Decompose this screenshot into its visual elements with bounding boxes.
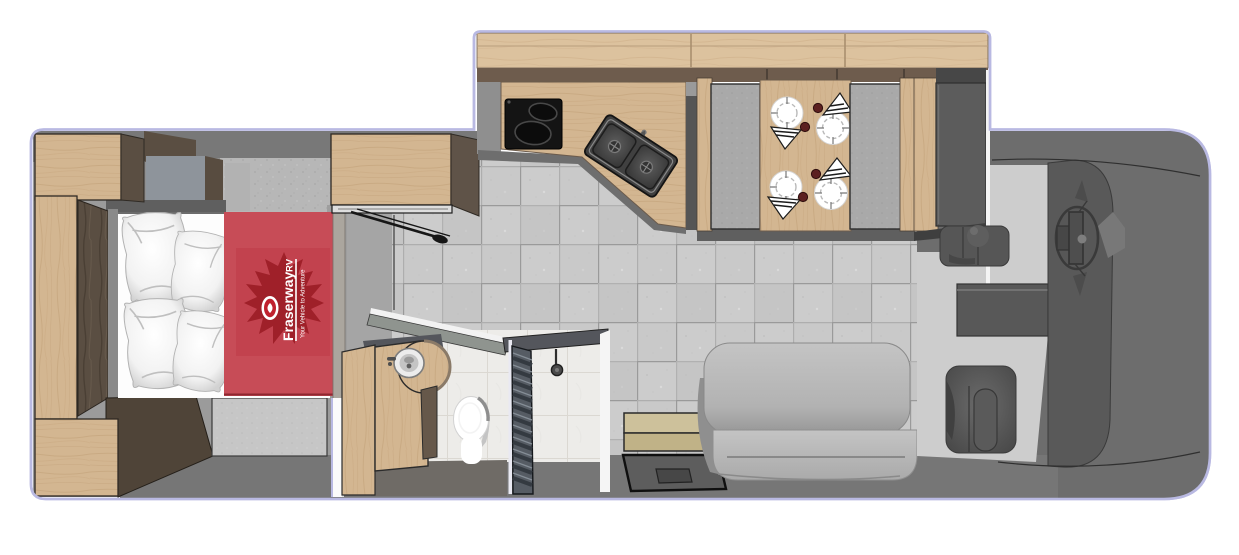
svg-text:Fraserway: Fraserway [280, 272, 296, 341]
svg-text:Your Vehicle to Adventure: Your Vehicle to Adventure [301, 269, 307, 338]
svg-text:RV: RV [285, 258, 296, 272]
